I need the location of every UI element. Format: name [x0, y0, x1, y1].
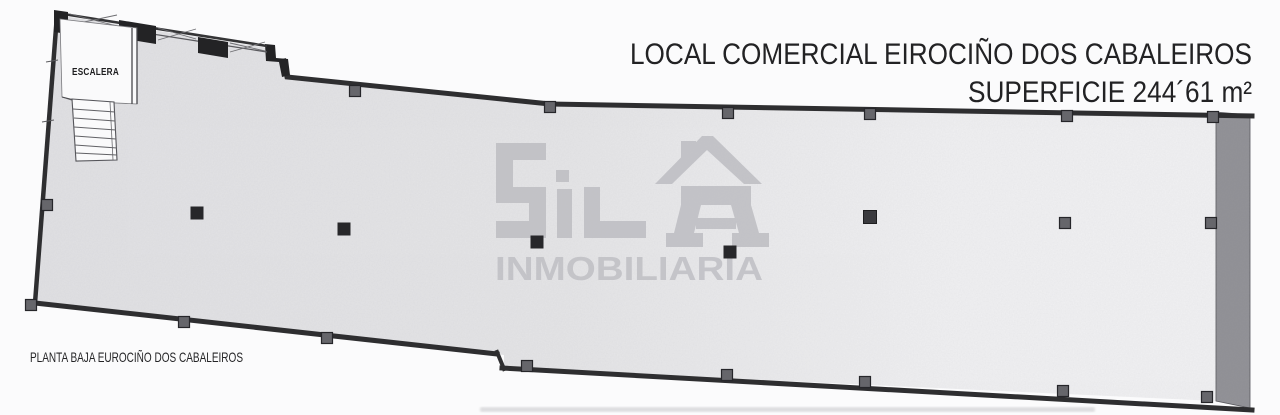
- scanned-floor-plan-page: INMOBILIARIA ESCALERA: [0, 0, 1280, 415]
- plan-title-line2: SUPERFICIE 244´61 m²: [968, 76, 1252, 109]
- right-wall-grain: [1216, 112, 1250, 408]
- watermark-subtitle: INMOBILIARIA: [495, 250, 763, 287]
- floor-plan-drawing: INMOBILIARIA ESCALERA: [0, 0, 1280, 415]
- stair-room-label: ESCALERA: [72, 67, 119, 78]
- stair-room: ESCALERA: [60, 19, 137, 104]
- plan-caption: PLANTA BAJA EUROCIÑO DOS CABALEIROS: [30, 349, 243, 365]
- scan-smudge: [480, 407, 1095, 412]
- staircase: [72, 99, 117, 161]
- plan-title-line1: LOCAL COMERCIAL EIROCIÑO DOS CABALEIROS: [630, 37, 1252, 71]
